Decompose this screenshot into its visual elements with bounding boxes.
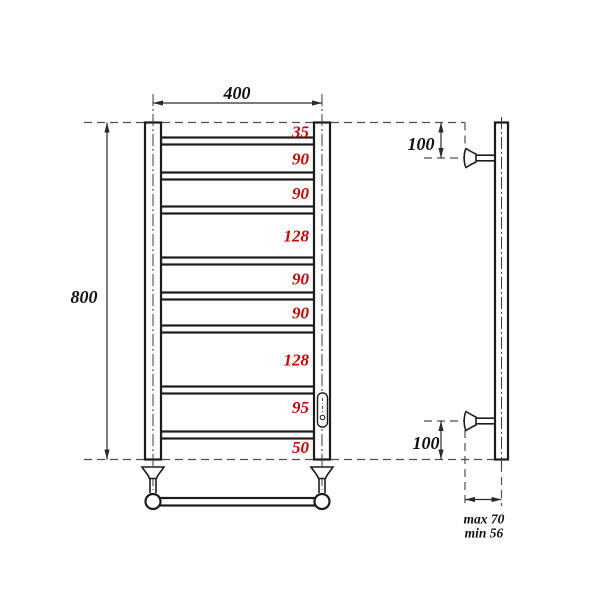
arrowhead <box>153 100 163 105</box>
side-bracket-flange-top <box>464 149 476 168</box>
arrowhead <box>312 100 322 105</box>
arrowhead <box>492 497 502 502</box>
height-dimension: 800 <box>71 123 110 460</box>
wall-clearance-min-label: min 56 <box>465 526 504 541</box>
rung-spacing-label: 50 <box>292 438 310 457</box>
side-bracket-flange-bottom <box>464 412 476 431</box>
rung-spacing-label: 128 <box>284 227 310 246</box>
stile-section-right <box>315 494 330 509</box>
height-dimension-label: 800 <box>71 287 98 307</box>
arrowhead <box>438 123 443 133</box>
rung <box>161 258 314 265</box>
rung-spacing-label: 90 <box>292 150 310 169</box>
front-view: 35 90 90 128 90 90 128 95 50 <box>145 94 330 490</box>
stile-section-left <box>146 494 161 509</box>
rung <box>161 173 314 180</box>
rung-spacing-label: 95 <box>292 398 310 417</box>
wall-bracket-flange-left <box>142 467 164 479</box>
arrowhead <box>438 421 443 431</box>
rung <box>161 326 314 333</box>
rung <box>161 387 314 394</box>
arrowhead <box>104 450 109 460</box>
rung-spacing-label: 90 <box>292 184 310 203</box>
bottom-rung-bar <box>159 498 316 506</box>
bottom-view <box>142 467 333 509</box>
arrowhead <box>438 148 443 158</box>
rung-spacing-label: 90 <box>292 304 310 323</box>
rung <box>161 207 314 214</box>
wall-bracket-flange-right <box>311 467 333 479</box>
side-bracket-stem-top <box>475 155 496 161</box>
top-offset-label: 100 <box>408 134 435 154</box>
rung-spacing-label: 35 <box>291 123 310 142</box>
rung-spacing-label: 90 <box>292 270 310 289</box>
towel-rail-technical-drawing: 35 90 90 128 90 90 128 95 50 <box>0 0 600 600</box>
rung-spacing-label: 128 <box>284 351 310 370</box>
side-wall-bracket-bottom <box>464 412 495 431</box>
wall-clearance-dimension: max 70 min 56 <box>464 497 505 541</box>
width-dimension-label: 400 <box>223 83 251 103</box>
top-offset-dimension: 100 <box>408 123 444 159</box>
side-bracket-stem-bottom <box>475 418 496 424</box>
width-dimension: 400 <box>153 83 322 106</box>
rung <box>161 293 314 300</box>
arrowhead <box>104 123 109 133</box>
wall-clearance-max-label: max 70 <box>464 512 505 527</box>
bottom-offset-dimension: 100 <box>413 421 444 460</box>
side-wall-bracket-top <box>464 149 495 168</box>
drawing-canvas: 35 90 90 128 90 90 128 95 50 <box>0 0 600 600</box>
bottom-offset-label: 100 <box>413 433 440 453</box>
dimensions: 400 800 100 100 max 70 min 56 <box>71 83 505 541</box>
arrowhead <box>465 497 475 502</box>
